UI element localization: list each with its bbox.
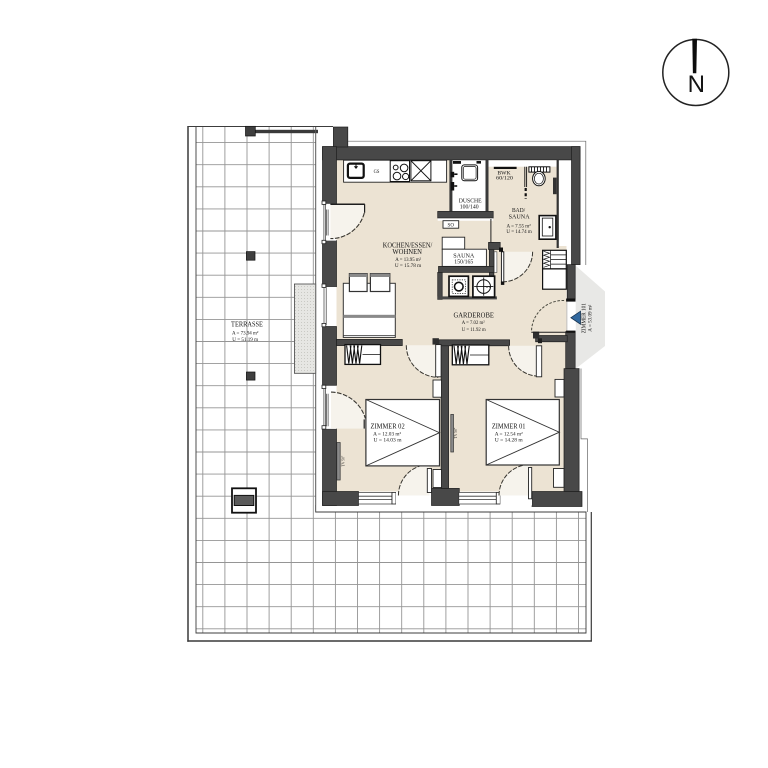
svg-text:A = 13.95 m²: A = 13.95 m²	[395, 257, 421, 263]
svg-text:100/140: 100/140	[460, 203, 479, 210]
svg-text:N: N	[688, 71, 705, 98]
svg-text:U = 51.19 m: U = 51.19 m	[232, 337, 258, 343]
svg-text:WOHNEN: WOHNEN	[392, 247, 422, 256]
svg-text:ZIMMER 02: ZIMMER 02	[371, 422, 405, 431]
svg-text:60/120: 60/120	[496, 177, 514, 182]
svg-text:A = 53.09 m²: A = 53.09 m²	[588, 304, 594, 332]
svg-text:ZIMMER 101: ZIMMER 101	[581, 303, 588, 333]
svg-text:TV 50": TV 50"	[454, 427, 458, 438]
svg-text:A = 73.94 m²: A = 73.94 m²	[232, 330, 259, 336]
svg-text:U = 14.74 m: U = 14.74 m	[506, 229, 532, 235]
svg-text:150/165: 150/165	[454, 259, 473, 266]
svg-text:TV 50": TV 50"	[342, 455, 346, 466]
svg-text:TERRASSE: TERRASSE	[231, 321, 263, 329]
svg-text:U = 14.28 m: U = 14.28 m	[495, 437, 524, 443]
svg-text:A = 7.02 m²: A = 7.02 m²	[462, 320, 485, 326]
svg-text:U = 14.03 m: U = 14.03 m	[374, 437, 403, 443]
svg-text:U = 11.92 m: U = 11.92 m	[462, 327, 486, 333]
svg-text:GS: GS	[374, 170, 380, 175]
svg-text:ZIMMER 01: ZIMMER 01	[492, 422, 526, 431]
svg-text:SAUNA: SAUNA	[509, 214, 530, 221]
svg-text:WT: WT	[485, 285, 490, 289]
svg-text:SO: SO	[448, 224, 455, 229]
svg-text:U = 15.78 m: U = 15.78 m	[395, 263, 422, 269]
svg-text:GARDEROBE: GARDEROBE	[454, 310, 495, 319]
